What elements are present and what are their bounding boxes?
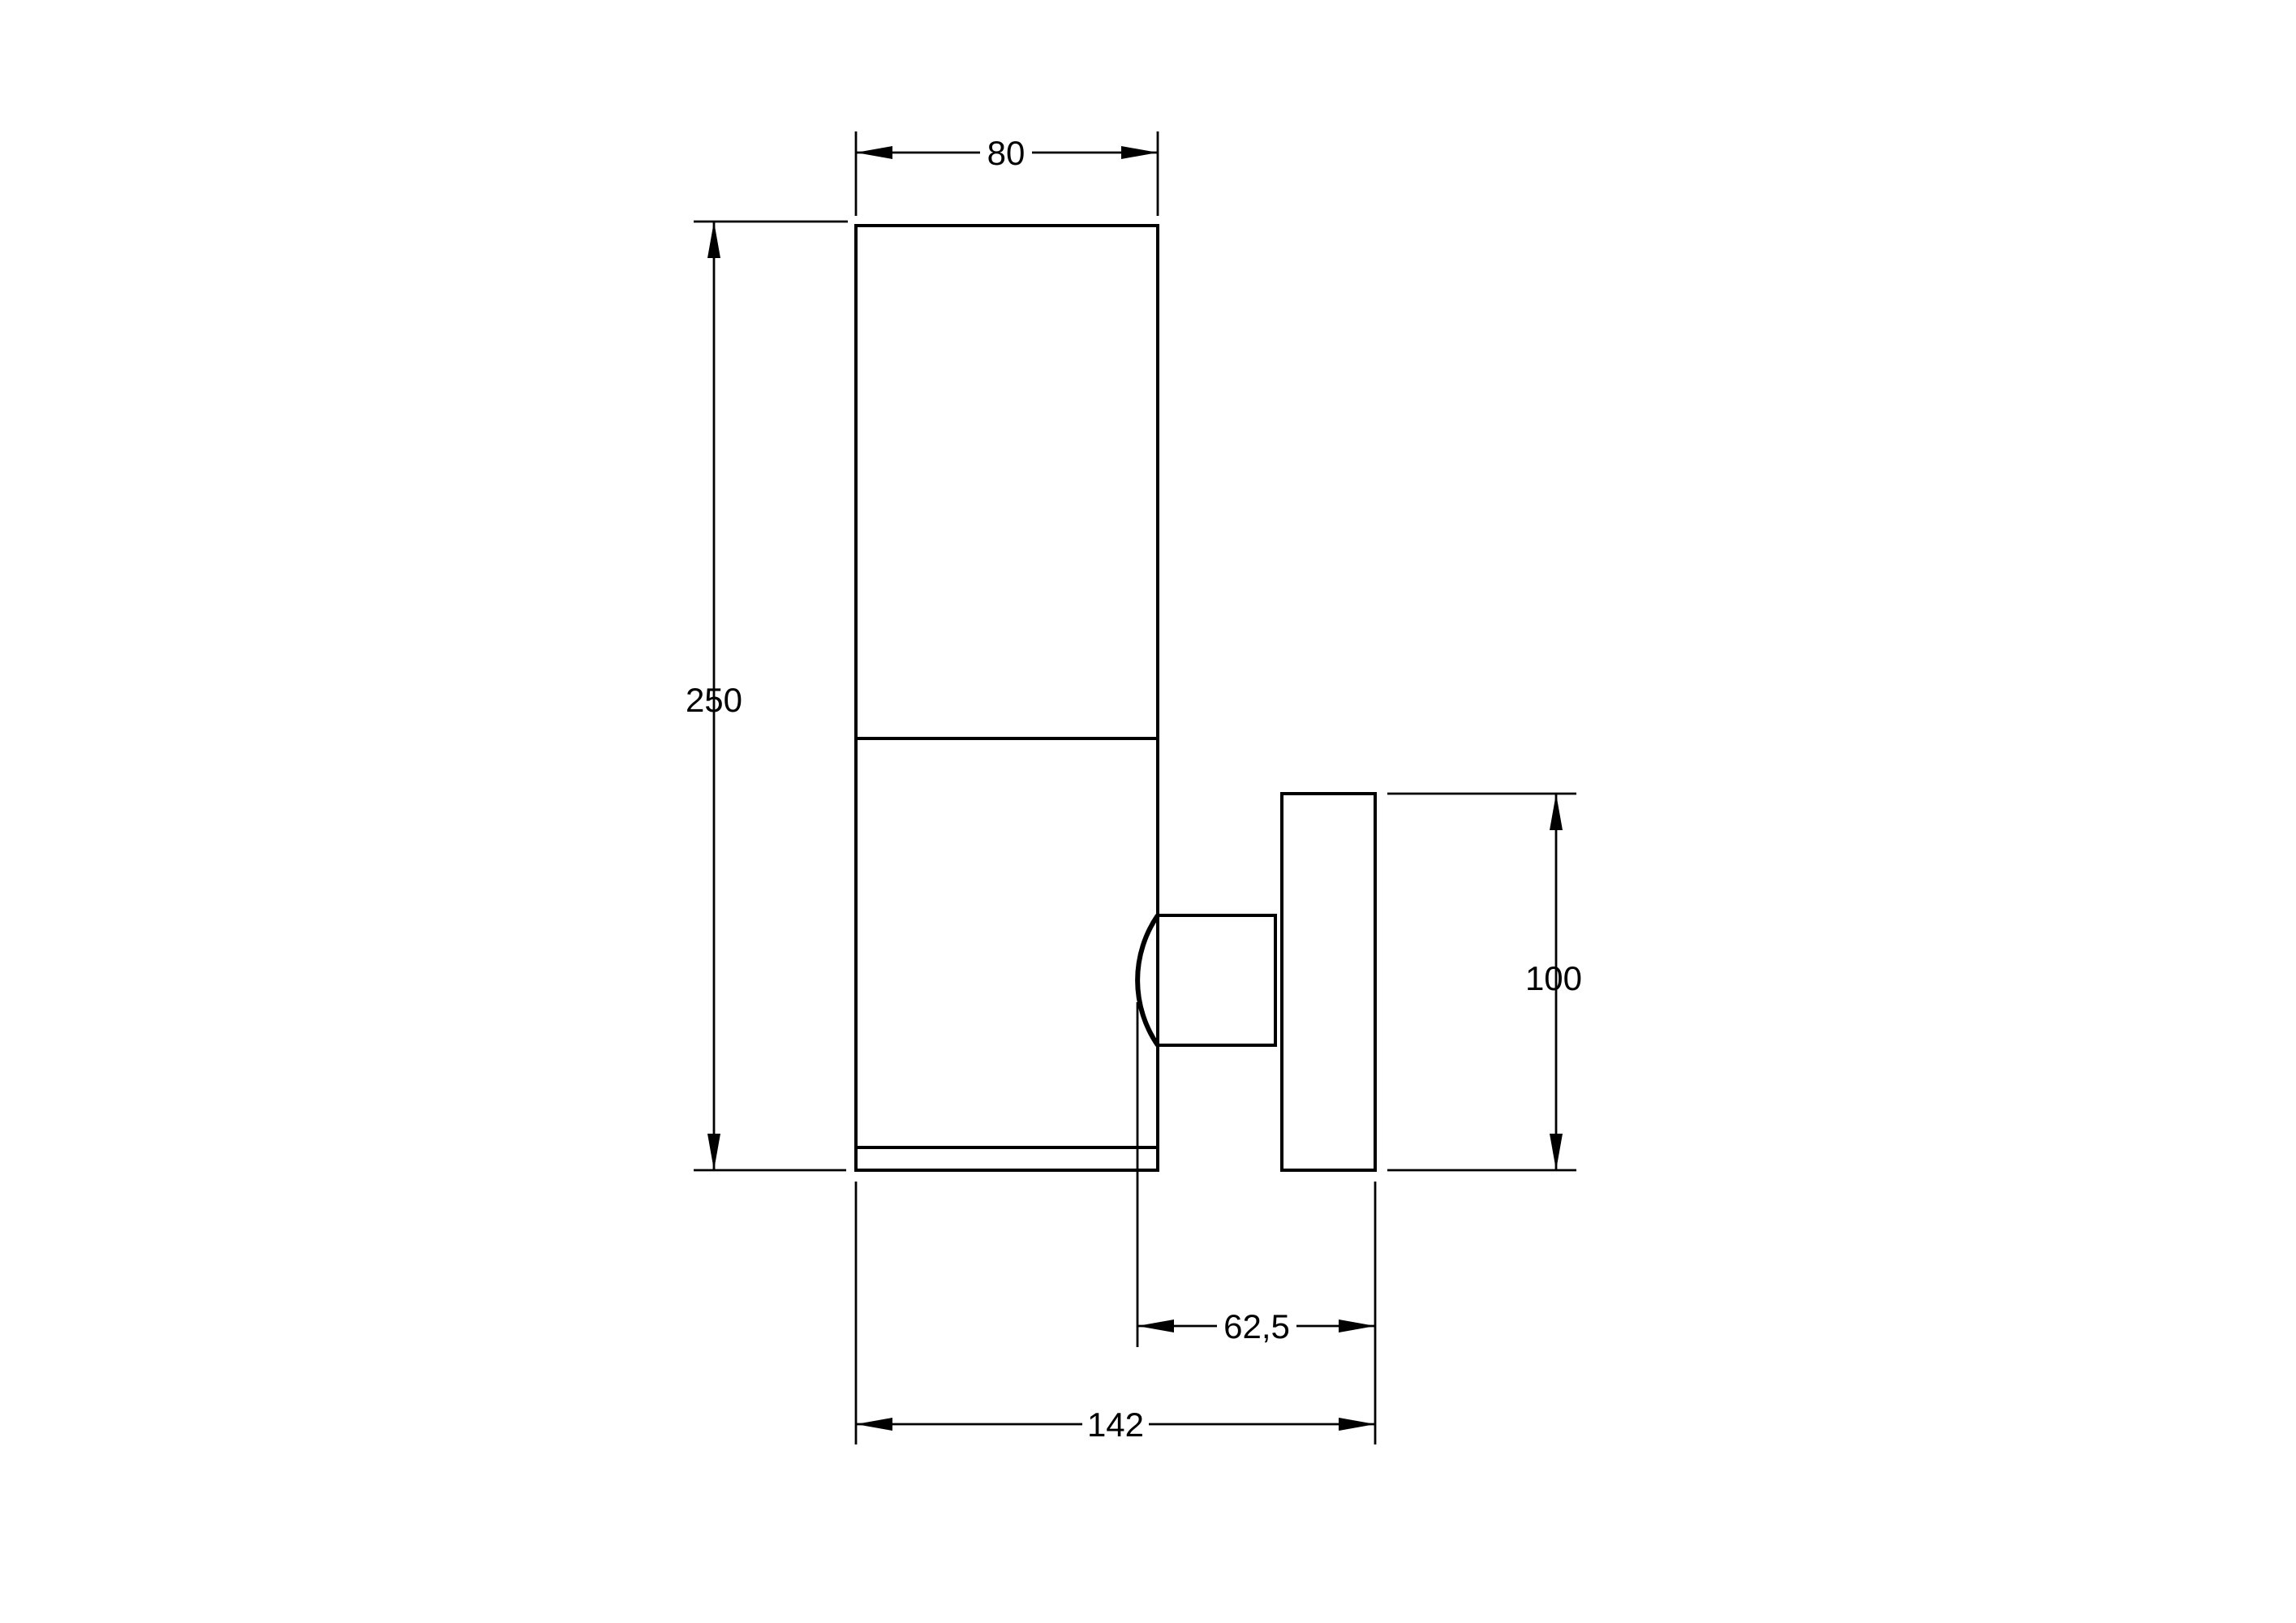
dimension-plate-height: 100 (1387, 794, 1582, 1170)
dimension-label: 80 (987, 134, 1025, 172)
wall-plate-outline (1282, 794, 1375, 1170)
arrowhead-left-icon (1137, 1319, 1174, 1332)
dimension-label: 100 (1525, 959, 1582, 997)
arrowhead-right-icon (1339, 1319, 1375, 1332)
dimension-body-height: 250 (686, 222, 848, 1170)
arrowhead-down-icon (707, 1134, 720, 1170)
dimension-label: 250 (686, 681, 742, 719)
technical-drawing-canvas: 80 250 100 62,5 (0, 0, 2296, 1623)
dimension-label: 142 (1087, 1406, 1144, 1444)
wall-lamp-dimension-drawing: 80 250 100 62,5 (0, 0, 2296, 1623)
arrowhead-up-icon (1550, 794, 1563, 830)
dimension-label: 62,5 (1223, 1307, 1290, 1345)
arrowhead-right-icon (1121, 146, 1158, 159)
arrowhead-left-icon (856, 146, 892, 159)
arrowhead-up-icon (707, 222, 720, 258)
arrowhead-right-icon (1339, 1418, 1375, 1431)
lamp-head-curve (1137, 915, 1158, 1045)
mounting-arm-outline (1158, 915, 1275, 1045)
dimension-offset-depth: 62,5 (1137, 1002, 1375, 1444)
dimension-body-width: 80 (856, 131, 1158, 216)
lamp-outline-group (856, 226, 1375, 1170)
dimension-total-depth: 142 (856, 1182, 1375, 1444)
arrowhead-down-icon (1550, 1134, 1563, 1170)
arrowhead-left-icon (856, 1418, 892, 1431)
lamp-body-outline (856, 226, 1158, 1170)
